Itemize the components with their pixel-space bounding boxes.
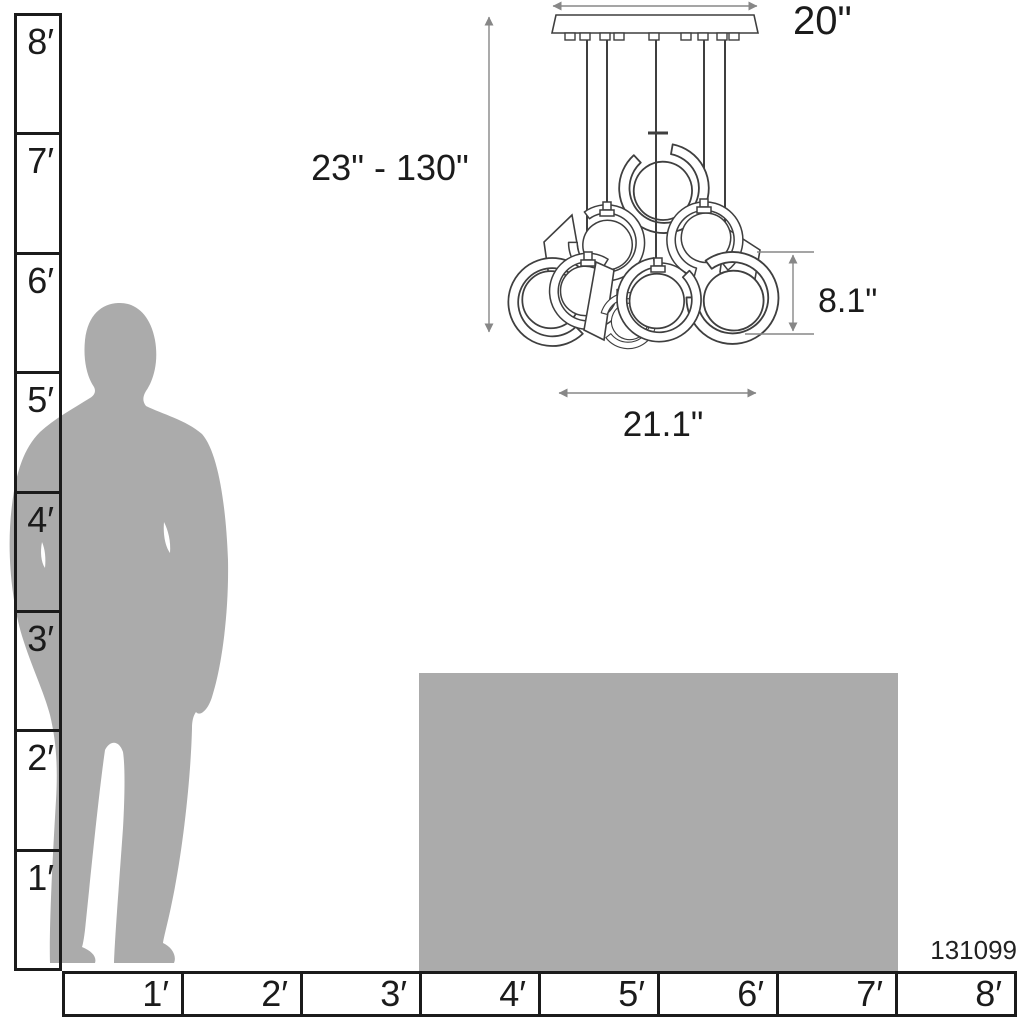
vertical-height-ruler: 8′ 7′ 6′ 5′ 4′ 3′ 2′ 1′	[14, 13, 62, 971]
v-ruler-mark-5ft: 5′	[17, 371, 59, 490]
v-ruler-mark-7ft: 7′	[17, 132, 59, 251]
canopy-plate	[552, 15, 758, 40]
v-ruler-mark-3ft: 3′	[17, 610, 59, 729]
v-ruler-mark-4ft: 4′	[17, 491, 59, 610]
product-number: 131099	[880, 937, 1017, 963]
fixture-width-label: 21.1"	[613, 407, 713, 442]
v-ruler-mark-1ft: 1′	[17, 849, 59, 968]
dimension-diagram: 8′ 7′ 6′ 5′ 4′ 3′ 2′ 1′ 1′ 2′ 3′ 4′ 5′ 6…	[0, 0, 1024, 1024]
h-ruler-mark-2ft: 2′	[181, 974, 300, 1014]
diagram-artwork	[0, 0, 1024, 1024]
canopy-width-label: 20"	[793, 1, 852, 41]
h-ruler-mark-1ft: 1′	[65, 974, 181, 1014]
h-ruler-mark-4ft: 4′	[419, 974, 538, 1014]
height-range-label: 23" - 130"	[290, 150, 490, 186]
horizontal-width-ruler: 1′ 2′ 3′ 4′ 5′ 6′ 7′ 8′	[62, 971, 1017, 1017]
chandelier-drawing	[508, 15, 784, 359]
shade-height-label: 8.1"	[818, 284, 877, 318]
h-ruler-mark-8ft: 8′	[895, 974, 1014, 1014]
h-ruler-mark-6ft: 6′	[657, 974, 776, 1014]
h-ruler-mark-5ft: 5′	[538, 974, 657, 1014]
v-ruler-mark-6ft: 6′	[17, 252, 59, 371]
h-ruler-mark-7ft: 7′	[776, 974, 895, 1014]
canopy-connectors	[565, 33, 739, 40]
v-ruler-mark-2ft: 2′	[17, 729, 59, 848]
h-ruler-mark-3ft: 3′	[300, 974, 419, 1014]
v-ruler-mark-8ft: 8′	[17, 16, 59, 132]
